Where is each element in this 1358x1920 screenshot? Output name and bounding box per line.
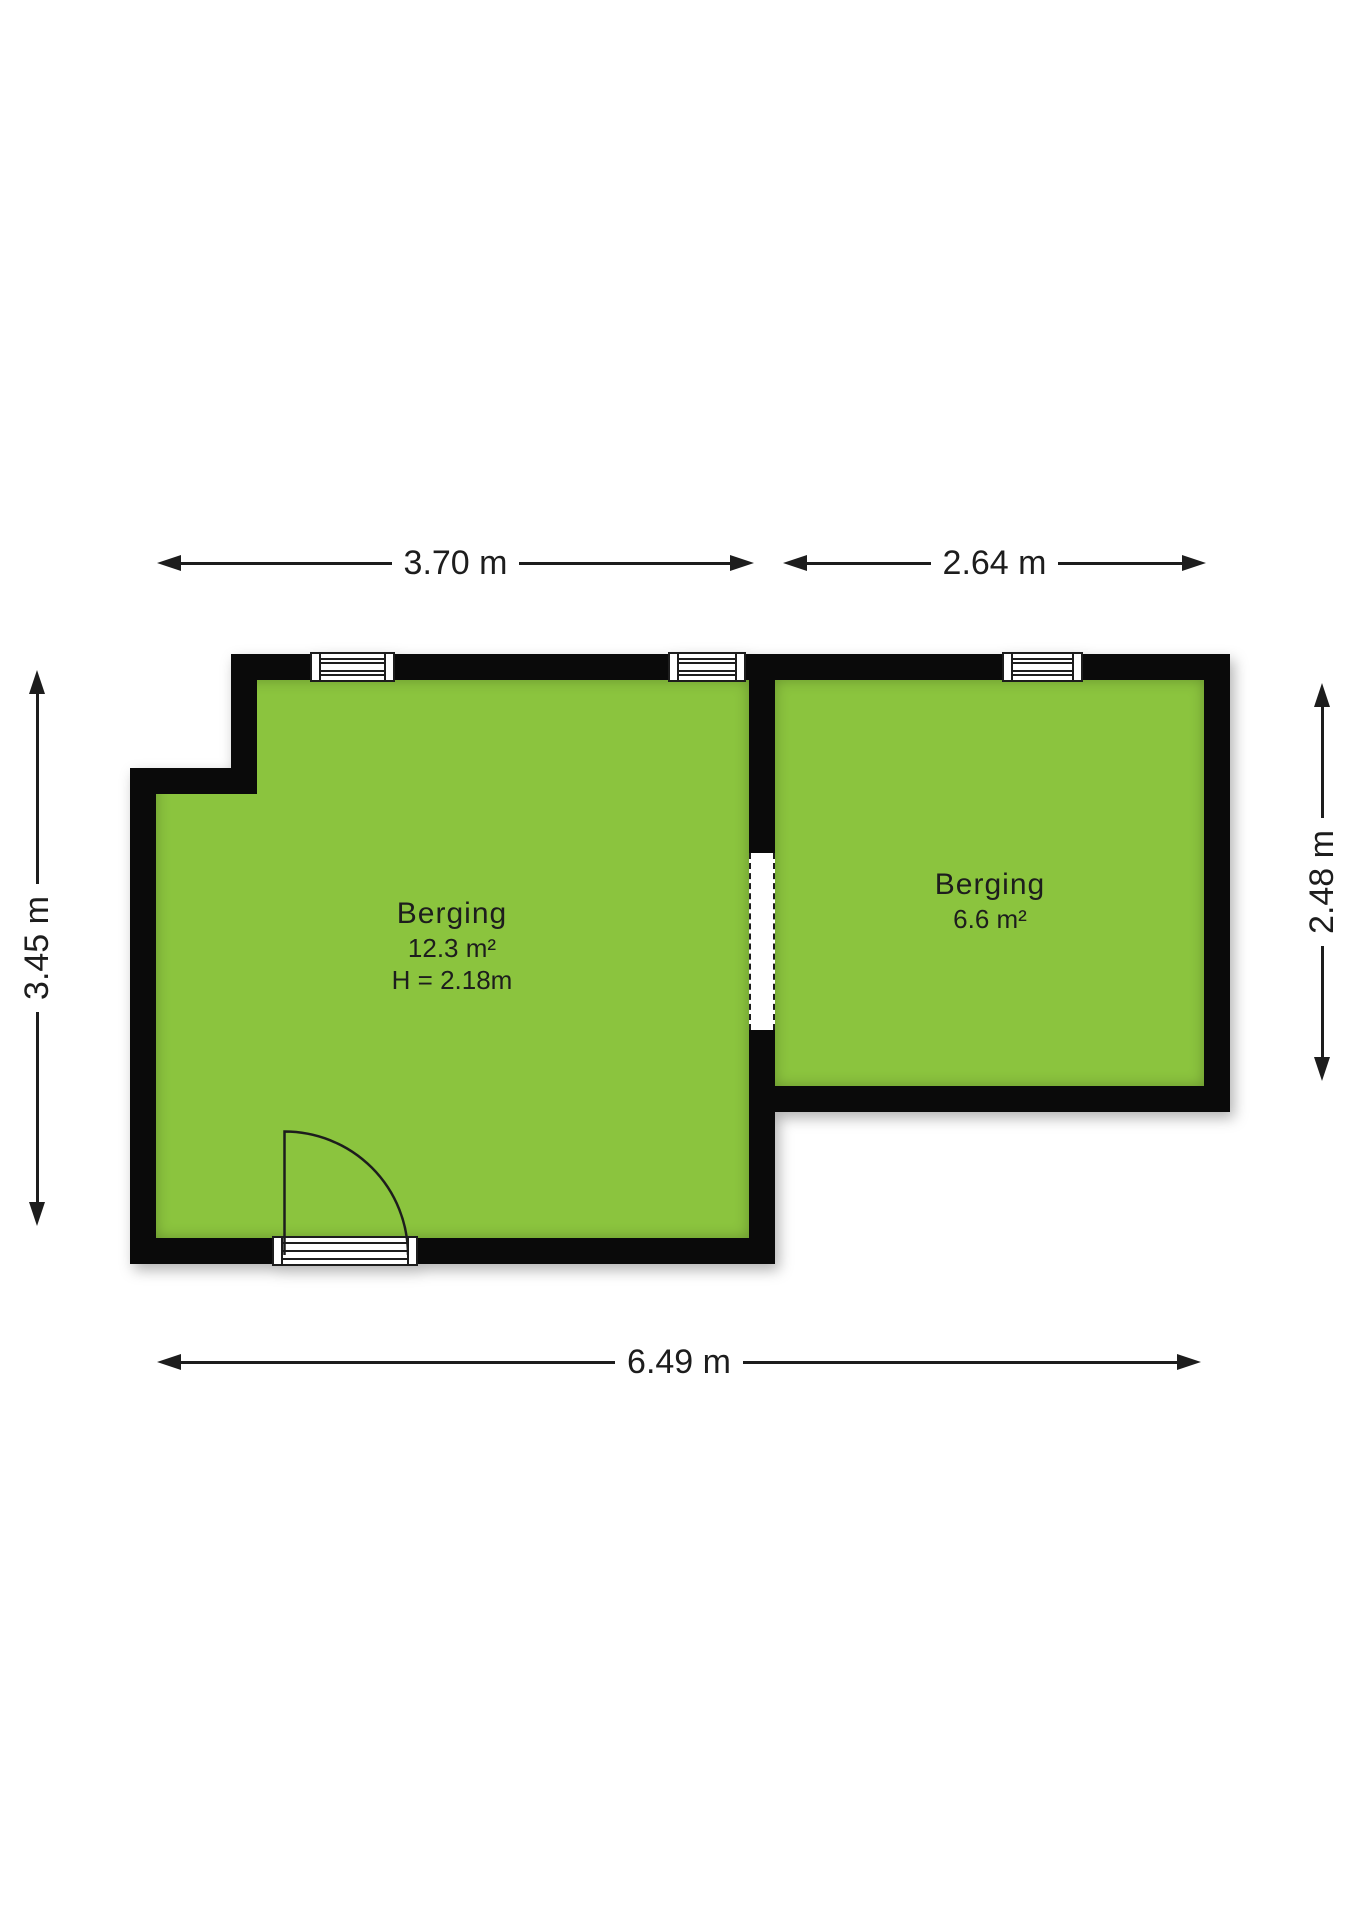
wall-middle-upper	[749, 654, 775, 853]
room-label-berging-large: Berging 12.3 m² H = 2.18m	[392, 896, 513, 996]
floorplan: Berging 12.3 m² H = 2.18m Berging 6.6 m²	[0, 0, 1358, 1920]
door-frame-cap	[274, 1238, 283, 1264]
room-name: Berging	[392, 896, 513, 932]
arrow-left-icon	[783, 555, 807, 571]
window-glazing	[321, 658, 384, 676]
window-frame-cap	[1072, 654, 1081, 680]
window-icon	[1002, 652, 1083, 682]
window-frame-cap	[735, 654, 744, 680]
window-frame-cap	[384, 654, 393, 680]
passage-opening-icon	[749, 853, 775, 1030]
door-swing-icon	[283, 1130, 409, 1256]
dimension-top-left: 3.70 m	[157, 545, 754, 581]
dimension-bottom: 6.49 m	[157, 1344, 1201, 1380]
window-icon	[310, 652, 395, 682]
dimension-label: 2.64 m	[931, 544, 1059, 583]
dimension-line	[181, 1361, 615, 1364]
dimension-top-right: 2.64 m	[783, 545, 1206, 581]
floorplan-canvas: Berging 12.3 m² H = 2.18m Berging 6.6 m²…	[0, 0, 1358, 1920]
arrow-right-icon	[1182, 555, 1206, 571]
window-glazing	[1013, 658, 1072, 676]
dimension-line	[1321, 946, 1324, 1057]
room-name: Berging	[935, 867, 1045, 903]
room-ceiling-height: H = 2.18m	[392, 964, 513, 996]
arrow-up-icon	[1314, 683, 1330, 707]
room-label-berging-small: Berging 6.6 m²	[935, 867, 1045, 935]
dimension-line	[743, 1361, 1177, 1364]
room-area: 12.3 m²	[392, 932, 513, 964]
dimension-right: 2.48 m	[1304, 683, 1340, 1081]
arrow-right-icon	[730, 555, 754, 571]
dimension-line	[807, 562, 931, 565]
window-frame-cap	[312, 654, 321, 680]
room-area: 6.6 m²	[935, 903, 1045, 935]
wall-bottom-right	[749, 1086, 1230, 1112]
dimension-label: 3.70 m	[392, 544, 520, 583]
wall-middle-lower	[749, 1030, 775, 1264]
dimension-label: 6.49 m	[615, 1343, 743, 1382]
arrow-up-icon	[29, 670, 45, 694]
dimension-left: 3.45 m	[19, 670, 55, 1226]
arrow-left-icon	[157, 1354, 181, 1370]
dimension-line	[36, 1012, 39, 1202]
dimension-line	[519, 562, 730, 565]
arrow-down-icon	[1314, 1057, 1330, 1081]
wall-bottom-left	[130, 1238, 775, 1264]
window-icon	[668, 652, 746, 682]
window-frame-cap	[1004, 654, 1013, 680]
dimension-line	[181, 562, 392, 565]
wall-right	[1204, 654, 1230, 1112]
arrow-right-icon	[1177, 1354, 1201, 1370]
dimension-label: 2.48 m	[1303, 818, 1342, 946]
arrow-left-icon	[157, 555, 181, 571]
arrow-down-icon	[29, 1202, 45, 1226]
dimension-line	[1321, 707, 1324, 818]
dimension-label: 3.45 m	[18, 884, 57, 1012]
wall-left	[130, 768, 156, 1264]
window-glazing	[679, 658, 735, 676]
dimension-line	[36, 694, 39, 884]
dimension-line	[1058, 562, 1182, 565]
window-frame-cap	[670, 654, 679, 680]
